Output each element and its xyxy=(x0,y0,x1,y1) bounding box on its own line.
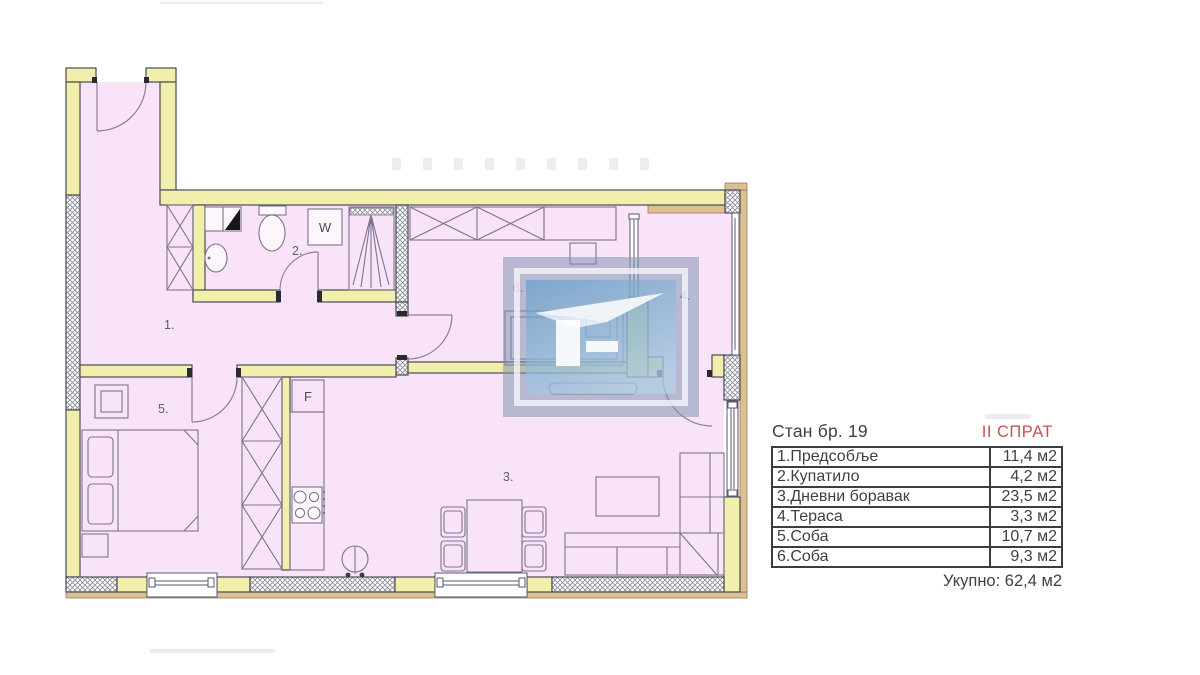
room-label-bathroom: 2. xyxy=(292,244,302,258)
apartment-legend: Стан бр. 19 II СПРАТ 1.Предсобље 11,4 м2… xyxy=(771,421,1063,591)
room-label-terrace: 4. xyxy=(680,289,690,303)
room-name: 2.Купатило xyxy=(772,467,990,487)
legend-header: Стан бр. 19 II СПРАТ xyxy=(772,421,1063,442)
room-name: 3.Дневни боравак xyxy=(772,487,990,507)
room-name: 6.Соба xyxy=(772,547,990,567)
floorplan-page: W F xyxy=(0,0,1200,675)
bathroom-sink xyxy=(205,244,227,272)
room-label-hallway: 1. xyxy=(164,318,174,332)
room-area: 3,3 м2 xyxy=(990,507,1062,527)
room-name: 4.Тераса xyxy=(772,507,990,527)
table-row: 3.Дневни боравак 23,5 м2 xyxy=(772,487,1062,507)
room-name: 1.Предсобље xyxy=(772,447,990,467)
area-table: 1.Предсобље 11,4 м2 2.Купатило 4,2 м2 3.… xyxy=(771,446,1063,568)
washing-machine: W xyxy=(308,209,342,245)
total-area: Укупно: 62,4 м2 xyxy=(771,572,1063,591)
table-row: 4.Тераса 3,3 м2 xyxy=(772,507,1062,527)
stove xyxy=(292,487,325,523)
room-area: 10,7 м2 xyxy=(990,527,1062,547)
room-label-room6: 6. xyxy=(513,281,523,295)
right-window xyxy=(727,401,738,497)
room-area: 4,2 м2 xyxy=(990,467,1062,487)
boiler xyxy=(205,207,241,231)
room-name: 5.Соба xyxy=(772,527,990,547)
fridge-label: F xyxy=(304,389,312,404)
table-row: 5.Соба 10,7 м2 xyxy=(772,527,1062,547)
room-area: 9,3 м2 xyxy=(990,547,1062,567)
floor-label: II СПРАТ xyxy=(982,423,1053,442)
apartment-title: Стан бр. 19 xyxy=(772,421,868,442)
washing-machine-label: W xyxy=(319,220,332,235)
room-label-living-room: 3. xyxy=(503,470,513,484)
table-row: 1.Предсобље 11,4 м2 xyxy=(772,447,1062,467)
bedroom-window xyxy=(147,573,217,597)
room-area: 23,5 м2 xyxy=(990,487,1062,507)
living-room-window xyxy=(435,573,527,597)
room-label-bedroom: 5. xyxy=(158,402,168,416)
room-area: 11,4 м2 xyxy=(990,447,1062,467)
table-row: 6.Соба 9,3 м2 xyxy=(772,547,1062,567)
toilet xyxy=(259,206,286,251)
table-row: 2.Купатило 4,2 м2 xyxy=(772,467,1062,487)
